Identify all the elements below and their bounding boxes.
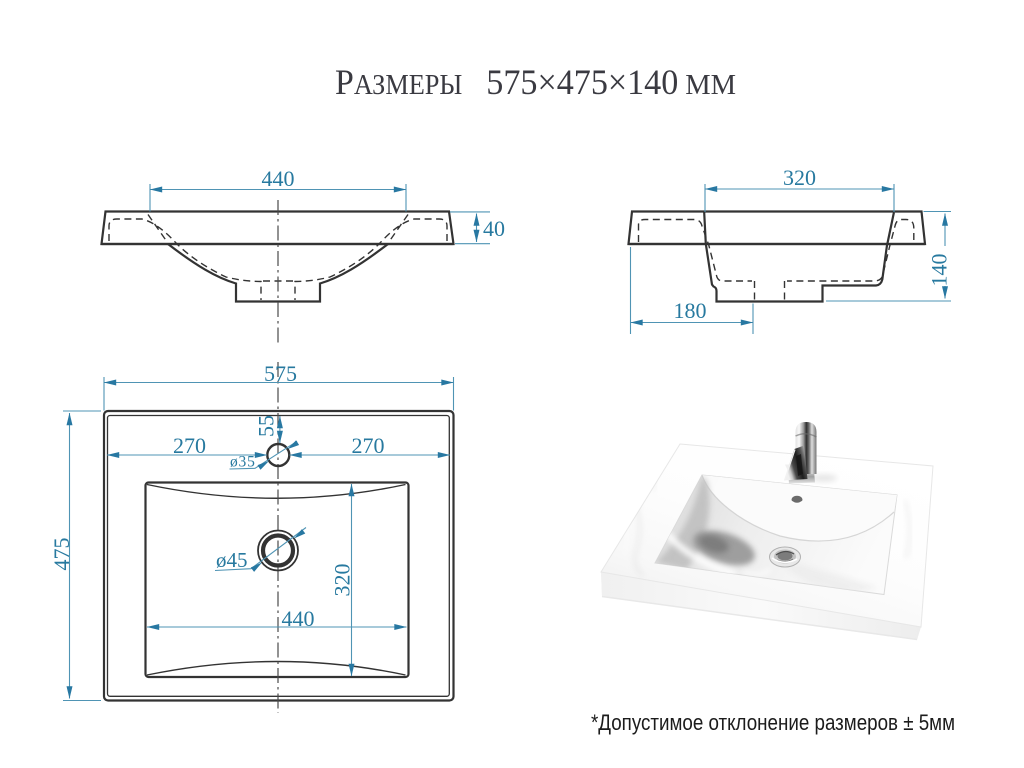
svg-text:180: 180 bbox=[674, 298, 707, 323]
svg-text:РАЗМЕРЫ: РАЗМЕРЫ bbox=[335, 62, 462, 102]
svg-text:*Допустимое отклонение размеро: *Допустимое отклонение размеров ± 5мм bbox=[591, 710, 955, 735]
svg-text:440: 440 bbox=[282, 606, 315, 631]
svg-text:270: 270 bbox=[173, 433, 206, 458]
svg-text:270: 270 bbox=[352, 433, 385, 458]
svg-text:ø45: ø45 bbox=[216, 548, 248, 572]
svg-text:ø35: ø35 bbox=[230, 454, 256, 471]
svg-text:320: 320 bbox=[783, 165, 816, 190]
svg-text:140: 140 bbox=[927, 254, 952, 287]
svg-text:475: 475 bbox=[49, 538, 74, 571]
svg-text:440: 440 bbox=[262, 166, 295, 191]
svg-text:ММ: ММ bbox=[685, 70, 736, 101]
svg-text:575×475×140: 575×475×140 bbox=[486, 62, 678, 102]
svg-text:575: 575 bbox=[264, 361, 297, 386]
svg-text:55: 55 bbox=[254, 415, 279, 437]
svg-text:320: 320 bbox=[330, 564, 355, 597]
svg-text:40: 40 bbox=[483, 216, 505, 241]
